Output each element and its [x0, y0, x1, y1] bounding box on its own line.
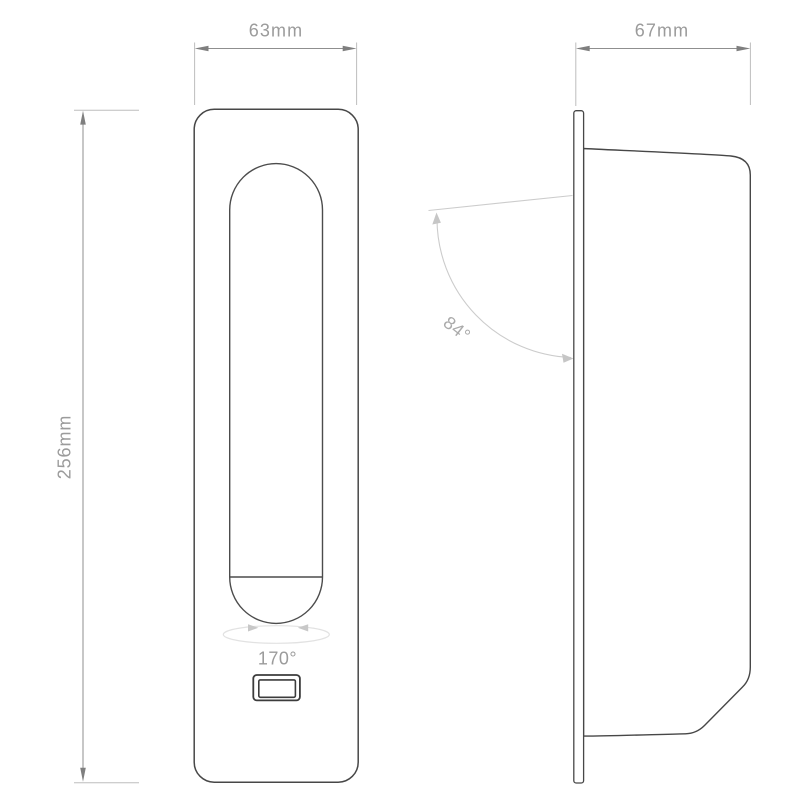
svg-text:256mm: 256mm — [55, 415, 75, 480]
svg-text:63mm: 63mm — [249, 21, 303, 41]
svg-text:170°: 170° — [258, 649, 297, 669]
svg-text:67mm: 67mm — [635, 21, 689, 41]
